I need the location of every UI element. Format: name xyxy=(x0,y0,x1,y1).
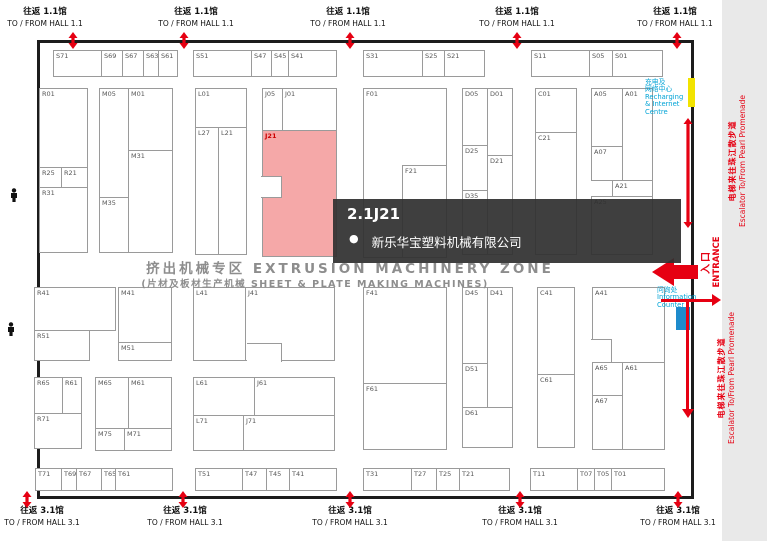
booth-label: M31 xyxy=(131,152,145,160)
booth-S71[interactable]: S71 xyxy=(53,50,102,77)
zone-subtitle: (片材及板材生产机械 SHEET & PLATE MAKING MACHINES… xyxy=(95,276,535,290)
booth-label: T45 xyxy=(269,470,281,478)
booth-S05[interactable]: S05 xyxy=(589,50,613,77)
hall-link-en: TO / FROM HALL 3.1 xyxy=(465,517,575,528)
hall-link-top: 往返 1.1馆TO / FROM HALL 1.1 xyxy=(141,6,251,29)
booth-label: R65 xyxy=(37,379,50,387)
booth-T31[interactable]: T31 xyxy=(363,468,412,491)
booth-label: A67 xyxy=(595,397,608,405)
entrance-arrow xyxy=(672,265,698,279)
hall-direction-arrow xyxy=(345,32,355,49)
booth-label: M75 xyxy=(98,430,112,438)
hall-direction-arrow xyxy=(515,491,525,508)
booth-label: J41 xyxy=(248,289,258,297)
booth-D51[interactable]: D51 xyxy=(462,363,488,408)
hall-link-en: TO / FROM HALL 1.1 xyxy=(141,18,251,29)
booth-label: D21 xyxy=(490,157,503,165)
booth-J61[interactable]: J61 xyxy=(254,377,335,416)
booth-M41[interactable]: M41 xyxy=(118,287,172,343)
hall-link-top: 往返 1.1馆TO / FROM HALL 1.1 xyxy=(0,6,100,29)
booth-R21[interactable]: R21 xyxy=(61,167,88,188)
booth-label: T21 xyxy=(462,470,474,478)
booth-T41[interactable]: T41 xyxy=(289,468,337,491)
booth-label: R61 xyxy=(65,379,78,387)
booth-label: T41 xyxy=(292,470,304,478)
hall-direction-arrow xyxy=(178,491,188,508)
booth-label: C61 xyxy=(540,376,553,384)
booth-label: M41 xyxy=(121,289,135,297)
booth-label: R25 xyxy=(42,169,55,177)
hall-link-en: TO / FROM HALL 3.1 xyxy=(623,517,733,528)
booth-D01[interactable]: D01 xyxy=(487,88,513,156)
booth-label: S63 xyxy=(146,52,158,60)
booth-label: R31 xyxy=(42,189,55,197)
recharge-centre-label: 充电及 网络中心 Recharging & Internet Centre xyxy=(645,79,691,116)
booth-C41[interactable]: C41 xyxy=(537,287,575,375)
booth-M35[interactable]: M35 xyxy=(99,197,129,253)
booth-label: L71 xyxy=(196,417,208,425)
booth-R31[interactable]: R31 xyxy=(39,187,88,253)
booth-label: C21 xyxy=(538,134,551,142)
person-icon xyxy=(9,188,19,202)
booth-S63[interactable]: S63 xyxy=(143,50,159,77)
booth-label: T71 xyxy=(38,470,50,478)
booth-T27[interactable]: T27 xyxy=(411,468,437,491)
hall-link-zh: 往返 1.1馆 xyxy=(141,6,251,18)
booth-R25[interactable]: R25 xyxy=(39,167,62,188)
booth-label: R21 xyxy=(64,169,77,177)
escalator-label-zh: 电梯来往珠江散步道 xyxy=(728,121,738,202)
booth-J71[interactable]: J71 xyxy=(243,415,335,451)
booth-T67[interactable]: T67 xyxy=(76,468,102,491)
booth-label: R41 xyxy=(37,289,50,297)
hall-link-en: TO / FROM HALL 3.1 xyxy=(295,517,405,528)
booth-L41[interactable]: L41 xyxy=(193,287,246,361)
booth-label: S05 xyxy=(592,52,604,60)
entrance-label-zh: 入口 xyxy=(702,250,712,274)
promenade-double-arrow xyxy=(683,118,693,228)
entrance-label-en: ENTRANCE xyxy=(712,237,722,288)
booth-T47[interactable]: T47 xyxy=(242,468,267,491)
hall-link-en: TO / FROM HALL 3.1 xyxy=(0,517,97,528)
hall-link-zh: 往返 1.1馆 xyxy=(293,6,403,18)
escalator-label-lower: 电梯来往珠江散步道 Escalator To/From Pearl Promen… xyxy=(716,303,738,453)
booth-label: T47 xyxy=(245,470,257,478)
booth-label: M61 xyxy=(131,379,145,387)
booth-L21[interactable]: L21 xyxy=(218,127,247,255)
booth-A21[interactable]: A21 xyxy=(612,180,653,197)
booth-S25[interactable]: S25 xyxy=(422,50,445,77)
booth-label: D45 xyxy=(465,289,478,297)
hall-link-bottom: 往返 3.1馆TO / FROM HALL 3.1 xyxy=(130,505,240,528)
booth-label: F61 xyxy=(366,385,378,393)
booth-T11[interactable]: T11 xyxy=(530,468,578,491)
booth-M65[interactable]: M65 xyxy=(95,377,129,429)
booth-label: T07 xyxy=(580,470,592,478)
booth-label: A65 xyxy=(595,364,608,372)
hall-link-bottom: 往返 3.1馆TO / FROM HALL 3.1 xyxy=(0,505,97,528)
booth-S31[interactable]: S31 xyxy=(363,50,423,77)
booth-J01[interactable]: J01 xyxy=(282,88,337,131)
entrance-label: 入口 ENTRANCE xyxy=(702,220,722,304)
hall-link-top: 往返 1.1馆TO / FROM HALL 1.1 xyxy=(620,6,730,29)
hall-direction-arrow xyxy=(672,32,682,49)
booth-label: F21 xyxy=(405,167,417,175)
booth-M71[interactable]: M71 xyxy=(124,428,172,451)
booth-A65[interactable]: A65 xyxy=(592,362,623,396)
route-arrow-line xyxy=(686,299,689,411)
booth-label: D41 xyxy=(490,289,503,297)
booth-label: M71 xyxy=(127,430,141,438)
booth-label: S11 xyxy=(534,52,546,60)
aisle-notch xyxy=(247,343,282,362)
booth-S01[interactable]: S01 xyxy=(612,50,663,77)
booth-label: L61 xyxy=(196,379,208,387)
booth-T51[interactable]: T51 xyxy=(195,468,243,491)
hall-link-zh: 往返 3.1馆 xyxy=(0,505,97,517)
booth-R01[interactable]: R01 xyxy=(39,88,88,168)
booth-label: S61 xyxy=(161,52,173,60)
tooltip-company-name: 新乐华宝塑料机械有限公司 xyxy=(372,232,522,251)
booth-label: L01 xyxy=(198,90,210,98)
floor-plan-page: S71S69S67S63S61S51S47S45S41S31S25S21S11S… xyxy=(0,0,767,541)
booth-label: T61 xyxy=(118,470,130,478)
hall-direction-arrow xyxy=(179,32,189,49)
booth-label: T69 xyxy=(64,470,76,478)
hall-direction-arrow xyxy=(68,32,78,49)
booth-T65[interactable]: T65 xyxy=(101,468,116,491)
booth-T21[interactable]: T21 xyxy=(459,468,510,491)
booth-D41[interactable]: D41 xyxy=(487,287,513,408)
booth-C01[interactable]: C01 xyxy=(535,88,577,133)
recharge-line: Centre xyxy=(645,109,691,116)
booth-D45[interactable]: D45 xyxy=(462,287,488,364)
booth-label: M35 xyxy=(102,199,116,207)
tooltip-booth-number: 2.1J21 xyxy=(347,205,400,223)
booth-S67[interactable]: S67 xyxy=(122,50,144,77)
booth-F41[interactable]: F41 xyxy=(363,287,447,384)
booth-label: S69 xyxy=(104,52,116,60)
booth-A07[interactable]: A07 xyxy=(591,146,623,181)
booth-L71[interactable]: L71 xyxy=(193,415,244,451)
booth-R65[interactable]: R65 xyxy=(34,377,63,414)
booth-label: T27 xyxy=(414,470,426,478)
hall-link-bottom: 往返 3.1馆TO / FROM HALL 3.1 xyxy=(295,505,405,528)
hall-direction-arrow xyxy=(512,32,522,49)
booth-S21[interactable]: S21 xyxy=(444,50,485,77)
booth-T05[interactable]: T05 xyxy=(594,468,612,491)
booth-label: C41 xyxy=(540,289,553,297)
hall-direction-arrow xyxy=(345,491,355,508)
booth-label: T11 xyxy=(533,470,545,478)
escalator-label-zh: 电梯来往珠江散步道 xyxy=(717,338,727,419)
booth-label: S41 xyxy=(291,52,303,60)
hall-link-bottom: 往返 3.1馆TO / FROM HALL 3.1 xyxy=(623,505,733,528)
booth-label: S01 xyxy=(615,52,627,60)
booth-label: D05 xyxy=(465,90,478,98)
booth-label: L21 xyxy=(221,129,233,137)
booth-label: L27 xyxy=(198,129,210,137)
escalator-label-upper: 电梯来往珠江散步道 Escalator To/From Pearl Promen… xyxy=(727,86,749,236)
booth-label: F01 xyxy=(366,90,378,98)
booth-M31[interactable]: M31 xyxy=(128,150,173,253)
booth-label: S51 xyxy=(196,52,208,60)
hall-link-zh: 往返 1.1馆 xyxy=(620,6,730,18)
hall-link-en: TO / FROM HALL 1.1 xyxy=(0,18,100,29)
right-margin-band xyxy=(722,0,767,541)
booth-M61[interactable]: M61 xyxy=(128,377,172,429)
booth-S51[interactable]: S51 xyxy=(193,50,252,77)
person-icon xyxy=(6,322,16,336)
hall-link-top: 往返 1.1馆TO / FROM HALL 1.1 xyxy=(462,6,572,29)
booth-label: A05 xyxy=(594,90,607,98)
booth-M01[interactable]: M01 xyxy=(128,88,173,151)
booth-tooltip: 2.1J21 ● 新乐华宝塑料机械有限公司 xyxy=(333,199,681,263)
booth-label: J01 xyxy=(285,90,295,98)
booth-label: L41 xyxy=(196,289,208,297)
escalator-label-en: Escalator To/From Pearl Promenade xyxy=(727,312,737,444)
booth-label: S21 xyxy=(447,52,459,60)
booth-label: A07 xyxy=(594,148,607,156)
booth-label: J61 xyxy=(257,379,267,387)
booth-D25[interactable]: D25 xyxy=(462,145,488,191)
bullet-icon: ● xyxy=(349,232,359,251)
hall-link-en: TO / FROM HALL 3.1 xyxy=(130,517,240,528)
booth-label: A61 xyxy=(625,364,638,372)
hall-link-zh: 往返 1.1馆 xyxy=(0,6,100,18)
booth-label: A41 xyxy=(595,289,608,297)
booth-label: S67 xyxy=(125,52,137,60)
booth-label: T31 xyxy=(366,470,378,478)
hall-link-en: TO / FROM HALL 1.1 xyxy=(620,18,730,29)
booth-label: T05 xyxy=(597,470,609,478)
hall-direction-arrow xyxy=(673,491,683,508)
booth-T45[interactable]: T45 xyxy=(266,468,290,491)
booth-label: T25 xyxy=(439,470,451,478)
booth-S47[interactable]: S47 xyxy=(251,50,272,77)
escalator-label-en: Escalator To/From Pearl Promenade xyxy=(738,95,748,227)
aisle-notch xyxy=(261,176,282,198)
booth-label: D25 xyxy=(465,147,478,155)
booth-label: S45 xyxy=(274,52,286,60)
booth-label: M05 xyxy=(102,90,116,98)
booth-L27[interactable]: L27 xyxy=(195,127,219,255)
hall-direction-arrow xyxy=(22,491,32,508)
booth-J05[interactable]: J05 xyxy=(262,88,283,131)
booth-label: S47 xyxy=(254,52,266,60)
booth-S45[interactable]: S45 xyxy=(271,50,289,77)
hall-link-top: 往返 1.1馆TO / FROM HALL 1.1 xyxy=(293,6,403,29)
booth-label: C01 xyxy=(538,90,551,98)
booth-A05[interactable]: A05 xyxy=(591,88,623,147)
booth-R41[interactable]: R41 xyxy=(34,287,116,331)
route-arrow-down-head xyxy=(682,409,694,418)
booth-T25[interactable]: T25 xyxy=(436,468,460,491)
booth-label: D01 xyxy=(490,90,503,98)
booth-S69[interactable]: S69 xyxy=(101,50,123,77)
booth-R51[interactable]: R51 xyxy=(34,330,90,361)
booth-label: M65 xyxy=(98,379,112,387)
booth-label: S31 xyxy=(366,52,378,60)
booth-label: S25 xyxy=(425,52,437,60)
booth-label: R71 xyxy=(37,415,50,423)
hall-link-zh: 往返 1.1馆 xyxy=(462,6,572,18)
booth-label: R51 xyxy=(37,332,50,340)
booth-label: R01 xyxy=(42,90,55,98)
booth-D05[interactable]: D05 xyxy=(462,88,488,146)
booth-T69[interactable]: T69 xyxy=(61,468,77,491)
booth-label: D61 xyxy=(465,409,478,417)
booth-T07[interactable]: T07 xyxy=(577,468,595,491)
booth-label: J71 xyxy=(246,417,256,425)
booth-C61[interactable]: C61 xyxy=(537,374,575,448)
booth-T61[interactable]: T61 xyxy=(115,468,173,491)
booth-label: M01 xyxy=(131,90,145,98)
booth-label: T51 xyxy=(198,470,210,478)
booth-L01[interactable]: L01 xyxy=(195,88,247,128)
booth-A61[interactable]: A61 xyxy=(622,362,665,450)
booth-T01[interactable]: T01 xyxy=(611,468,665,491)
booth-M75[interactable]: M75 xyxy=(95,428,125,451)
booth-R61[interactable]: R61 xyxy=(62,377,82,414)
booth-label: J21 xyxy=(265,132,276,140)
booth-label: A01 xyxy=(625,90,638,98)
booth-label: M51 xyxy=(121,344,135,352)
booth-A67[interactable]: A67 xyxy=(592,395,623,450)
booth-label: F41 xyxy=(366,289,378,297)
aisle-notch xyxy=(591,339,612,362)
booth-label: T01 xyxy=(614,470,626,478)
booth-S11[interactable]: S11 xyxy=(531,50,590,77)
booth-label: J05 xyxy=(265,90,275,98)
booth-S41[interactable]: S41 xyxy=(288,50,337,77)
booth-R71[interactable]: R71 xyxy=(34,413,82,449)
booth-M05[interactable]: M05 xyxy=(99,88,129,198)
booth-D61[interactable]: D61 xyxy=(462,407,513,448)
booth-label: D51 xyxy=(465,365,478,373)
booth-S61[interactable]: S61 xyxy=(158,50,178,77)
booth-F61[interactable]: F61 xyxy=(363,383,447,450)
hall-link-en: TO / FROM HALL 1.1 xyxy=(293,18,403,29)
booth-T71[interactable]: T71 xyxy=(35,468,62,491)
booth-label: T67 xyxy=(79,470,91,478)
booth-label: S71 xyxy=(56,52,68,60)
hall-link-en: TO / FROM HALL 1.1 xyxy=(462,18,572,29)
hall-link-bottom: 往返 3.1馆TO / FROM HALL 3.1 xyxy=(465,505,575,528)
booth-L61[interactable]: L61 xyxy=(193,377,255,416)
booth-label: A21 xyxy=(615,182,628,190)
booth-M51[interactable]: M51 xyxy=(118,342,172,361)
